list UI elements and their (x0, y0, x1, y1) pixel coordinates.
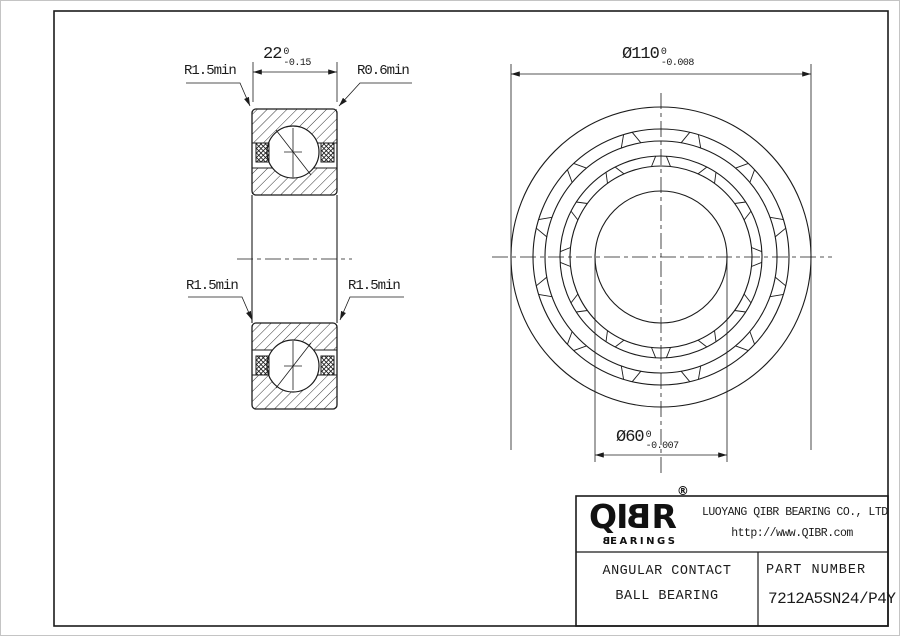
width-dimension-text: 22 0 -0.15 (263, 46, 311, 69)
radius-label-top-left: R1.5min (184, 64, 236, 79)
radius-label-mid-right: R1.5min (348, 279, 400, 294)
radius-label-mid-left: R1.5min (186, 279, 238, 294)
bore-dimension-text: Ø60 0 -0.007 (616, 429, 679, 452)
registered-mark-icon: ® (677, 484, 688, 498)
part-number-label: PART NUMBER (766, 564, 866, 579)
cage-section-right (321, 356, 334, 375)
company-logo-subtext: BEARINGS (600, 536, 677, 547)
company-website: http://www.QIBR.com (702, 528, 882, 541)
cage-section-left (256, 356, 269, 375)
company-name: LUOYANG QIBR BEARING CO., LTD (702, 507, 882, 520)
front-view (492, 64, 832, 476)
engineering-drawing-sheet: 22 0 -0.15 Ø110 0 -0.008 Ø60 0 -0.007 R1… (0, 0, 900, 636)
od-dimension-text: Ø110 0 -0.008 (622, 46, 694, 69)
radius-label-top-right: R0.6min (357, 64, 409, 79)
part-number-value: 7212A5SN24/P4Y (768, 591, 895, 609)
product-type-line1: ANGULAR CONTACT (576, 565, 758, 580)
company-logo: QIBR® (589, 499, 687, 535)
cage-section-right (321, 143, 334, 162)
cage-section-left (256, 143, 269, 162)
bottom-section (252, 323, 337, 409)
top-section (252, 109, 337, 195)
product-type-line2: BALL BEARING (576, 590, 758, 605)
cross-section-view (186, 62, 412, 409)
